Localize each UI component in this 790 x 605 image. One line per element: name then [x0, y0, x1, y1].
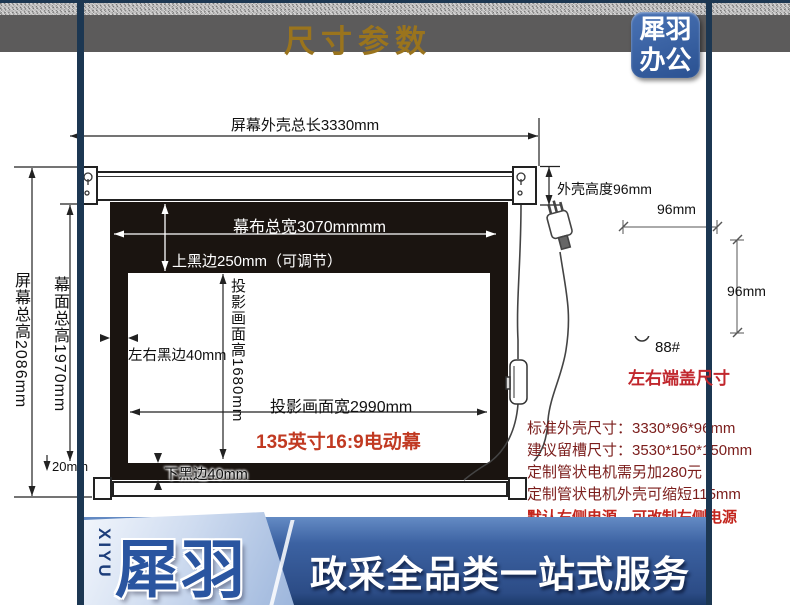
housing-right-bracket [512, 166, 537, 205]
bottom-bar-right-end [508, 477, 527, 500]
spec-line: 标准外壳尺寸：3330*96*96mm [527, 418, 752, 440]
footer-banner: XIYU 犀羽 政采全品类一站式服务 [84, 517, 707, 605]
dim-total-length-label: 屏幕外壳总长3330mm [185, 114, 425, 135]
dim-view-width-label: 投影画面宽2990mm [270, 393, 412, 417]
top-border [0, 0, 790, 3]
dim-fabric-width-label: 幕布总宽3070mmmm [233, 213, 386, 237]
dim-view-height-label: 投影画面高1680mm [227, 278, 248, 448]
spec-line: 定制管状电机需另加280元 [527, 462, 752, 484]
dim-top-black-label: 上黑边250mm（可调节） [172, 250, 342, 271]
endcap-height-label: 96mm [727, 283, 766, 299]
brand-logo-line2: 办公 [631, 45, 700, 76]
endcap-detail-backing [620, 238, 720, 336]
cord-switch-icon [506, 360, 527, 404]
dim-side-black-label: 左右黑边40mm [128, 344, 226, 365]
dim-screen-total-height-label: 屏幕总高2086mm [8, 272, 32, 432]
brand-logo-badge: 犀羽 办公 [631, 12, 700, 78]
endcap-caption: 左右端盖尺寸 [628, 364, 730, 389]
model-size-label: 135英寸16:9电动幕 [256, 427, 421, 454]
frame-border-left [77, 0, 84, 605]
screen-housing-tube [96, 171, 522, 201]
endcap-width-label: 96mm [657, 201, 696, 217]
product-size-infographic: 尺寸参数 犀羽 办公 [0, 0, 790, 605]
spec-text-block: 标准外壳尺寸：3330*96*96mm 建议留槽尺寸：3530*150*150m… [527, 418, 752, 506]
brand-en-vertical: XIYU [94, 528, 114, 602]
spec-line: 定制管状电机外壳可缩短115mm [527, 484, 752, 506]
endcap-model-label: 88# [655, 339, 680, 356]
dim-fabric-height-label: 幕面总高1970mm [47, 276, 71, 436]
dim-bottom-black-label: 下黑边40mm [164, 463, 248, 484]
bottom-bar-left-end [93, 477, 112, 500]
footer-slogan: 政采全品类一站式服务 [296, 544, 704, 598]
brand-cn-large: 犀羽 [115, 519, 247, 605]
frame-border-right [706, 0, 712, 605]
dim-case-height-label: 外壳高度96mm [557, 179, 652, 199]
page-title: 尺寸参数 [78, 16, 638, 61]
spec-line: 建议留槽尺寸：3530*150*150mm [527, 440, 752, 462]
brand-logo-line1: 犀羽 [631, 14, 700, 45]
